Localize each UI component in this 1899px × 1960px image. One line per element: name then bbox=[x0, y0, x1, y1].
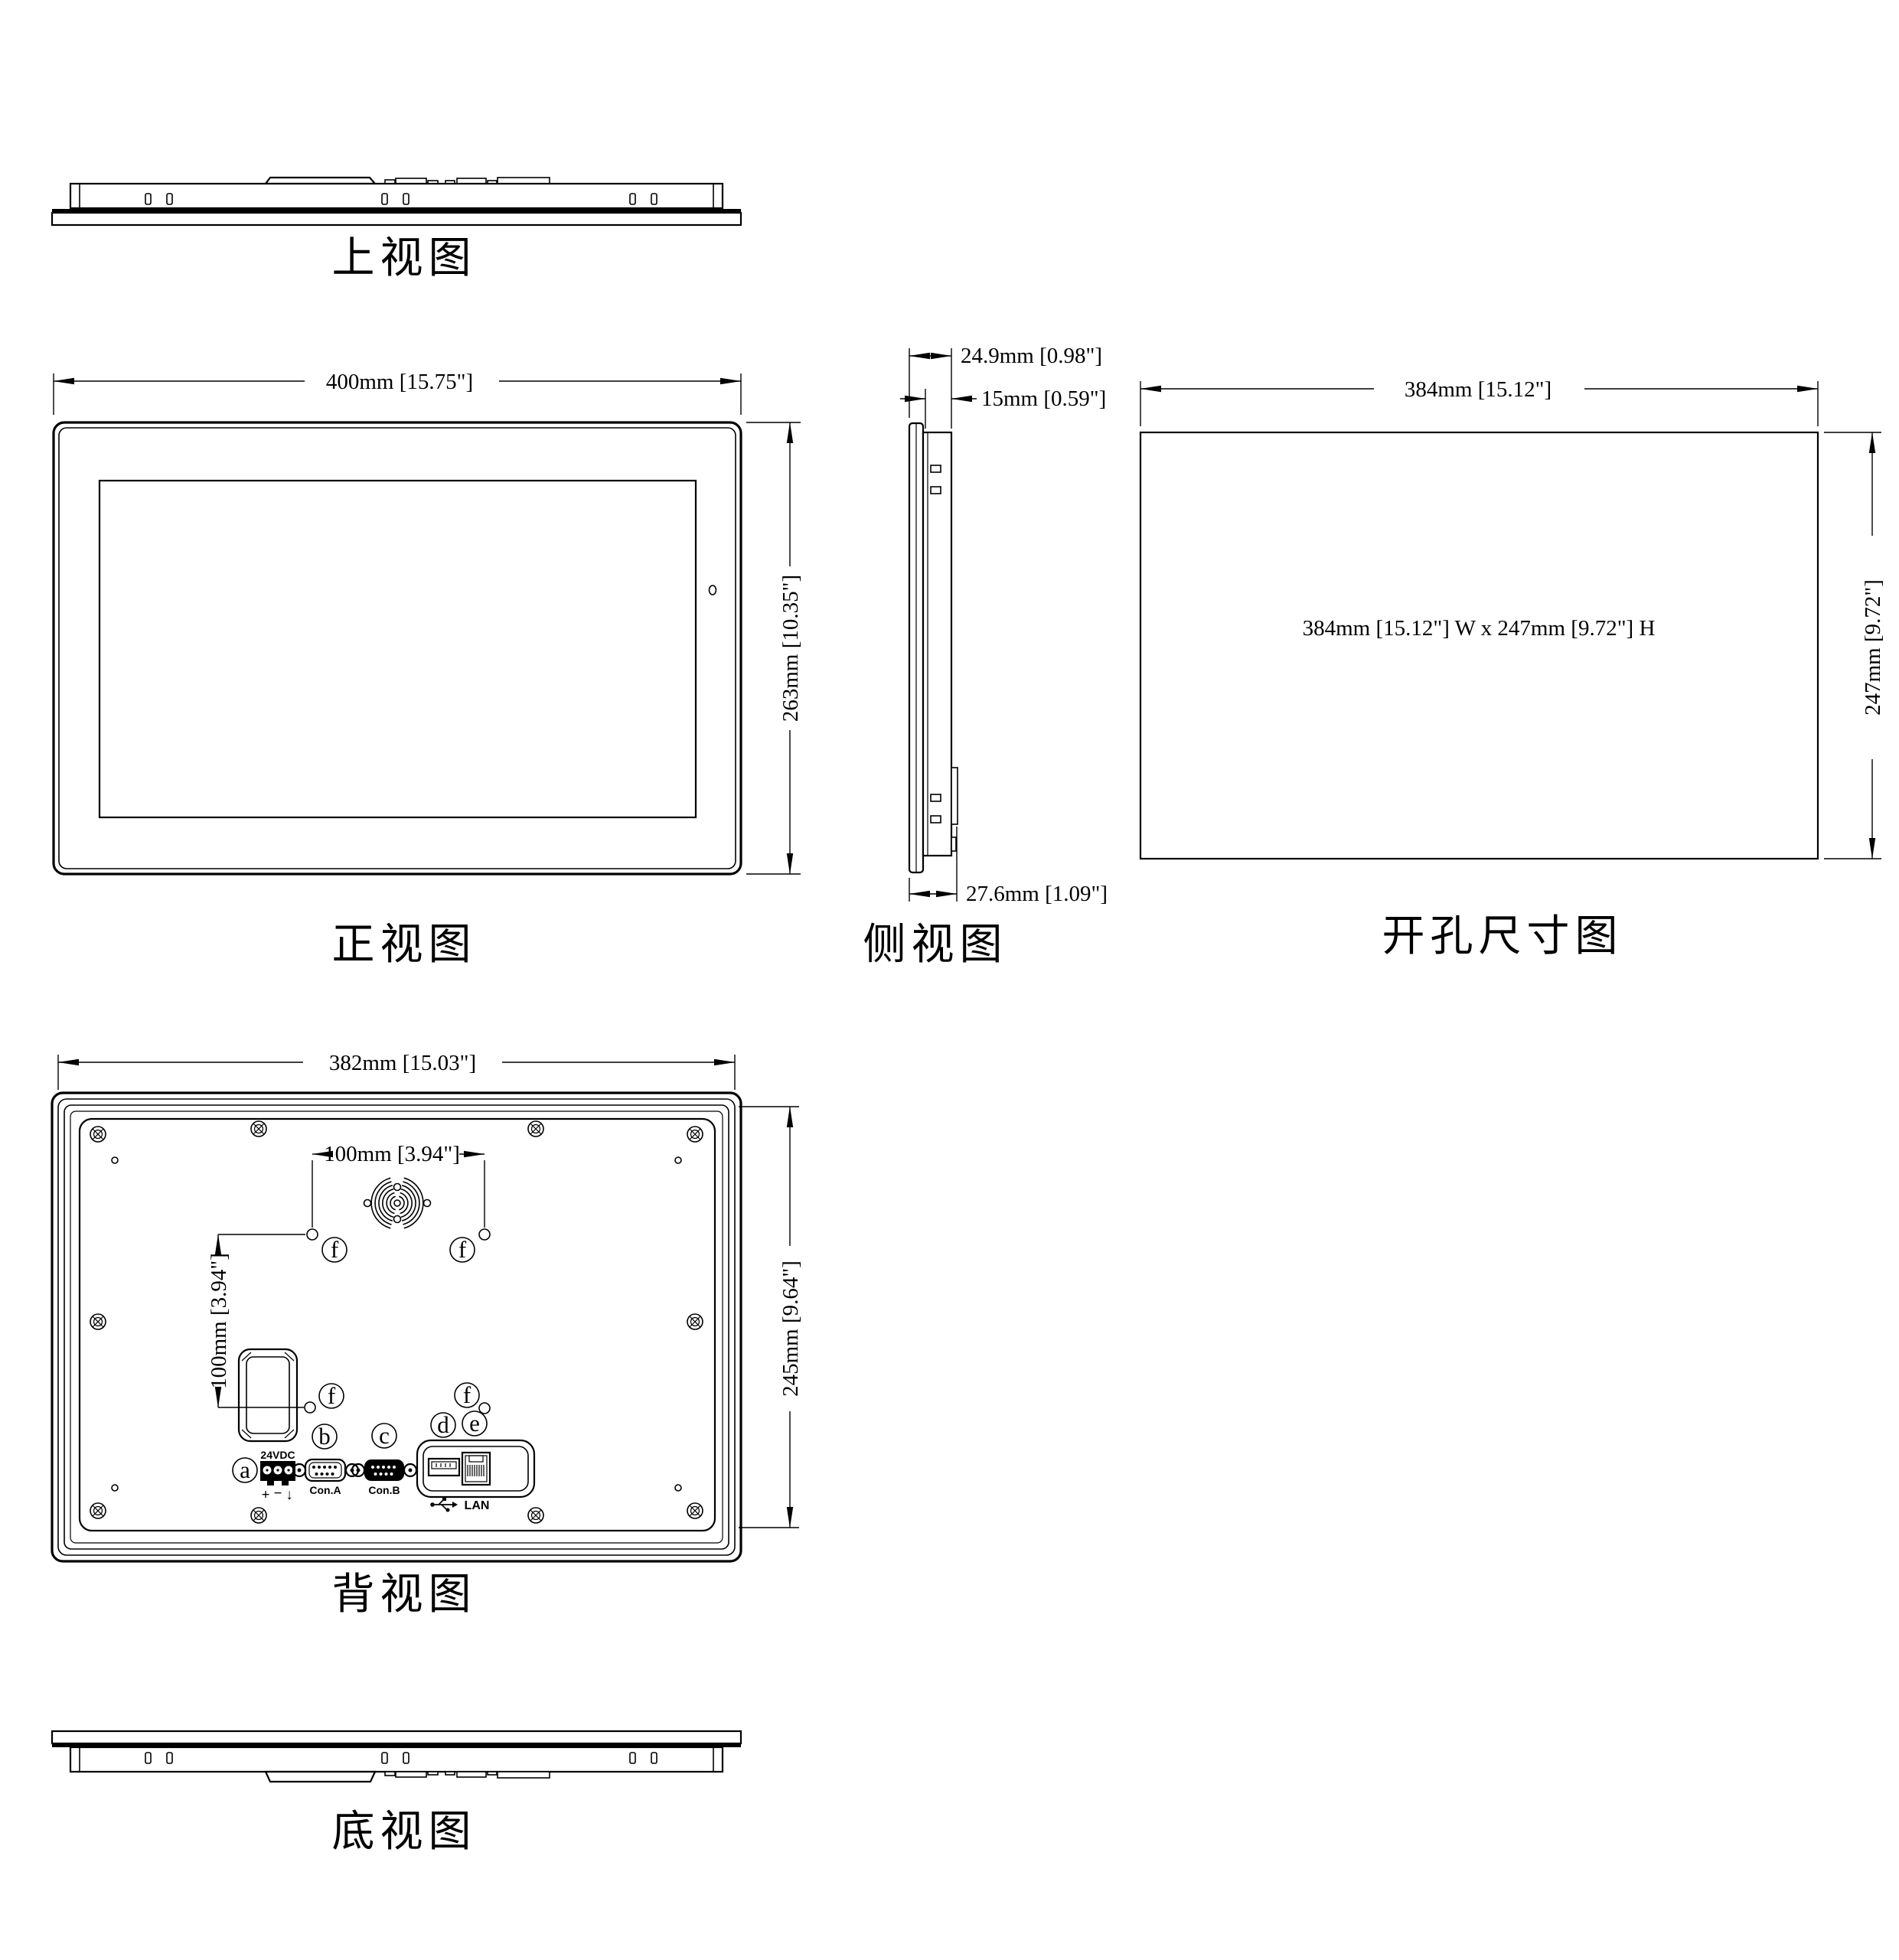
back-height-dim: 245mm [9.64"] bbox=[778, 1260, 803, 1397]
side-depth-rear-dim: 27.6mm [1.09"] bbox=[966, 882, 1108, 906]
callout-b: b bbox=[318, 1423, 331, 1450]
side-view: 24.9mm [0.98"] 15mm [0.59"] 27.6mm [1.09… bbox=[863, 344, 1108, 969]
top-bezel bbox=[52, 213, 741, 225]
back-width-dim: 382mm [15.03"] bbox=[329, 1051, 476, 1075]
con-a-label: Con.A bbox=[309, 1484, 341, 1496]
bottom-connector-bump bbox=[266, 1772, 375, 1782]
callout-c: c bbox=[379, 1422, 390, 1449]
power-plus-symbol: + bbox=[262, 1487, 270, 1503]
svg-text:f: f bbox=[328, 1382, 336, 1409]
side-view-label: 侧视图 bbox=[863, 921, 1008, 969]
drawing-svg: 上视图 400mm [15.75"] 263mm [10.35"] 正视图 bbox=[0, 0, 1899, 1960]
side-depth-total-dim: 24.9mm [0.98"] bbox=[961, 344, 1102, 368]
cutout-view-label: 开孔尺寸图 bbox=[1382, 913, 1623, 960]
front-width-dim: 400mm [15.75"] bbox=[326, 370, 473, 394]
back-view-label: 背视图 bbox=[332, 1571, 477, 1619]
svg-text:f: f bbox=[463, 1381, 471, 1408]
callout-f: f bbox=[331, 1236, 339, 1263]
front-view: 400mm [15.75"] 263mm [10.35"] 正视图 bbox=[54, 370, 803, 969]
side-connector-bump bbox=[951, 768, 958, 824]
vesa-height-dim: 100mm [3.94"] bbox=[207, 1253, 231, 1389]
bottom-body bbox=[70, 1747, 723, 1772]
top-view-label: 上视图 bbox=[332, 235, 477, 282]
bottom-view-label: 底视图 bbox=[332, 1808, 477, 1856]
front-height-dim: 263mm [10.35"] bbox=[778, 575, 803, 722]
callout-a: a bbox=[240, 1456, 250, 1483]
power-ground-symbol: ↓ bbox=[286, 1487, 293, 1503]
technical-drawing-page: 上视图 400mm [15.75"] 263mm [10.35"] 正视图 bbox=[0, 0, 1899, 1960]
cutout-width-dim: 384mm [15.12"] bbox=[1405, 377, 1552, 402]
power-label: 24VDC bbox=[260, 1449, 295, 1461]
con-b-label: Con.B bbox=[368, 1484, 400, 1496]
top-connector-bump bbox=[266, 178, 375, 184]
cutout-view: 384mm [15.12"] 384mm [15.12"] W x 247mm … bbox=[1140, 377, 1885, 960]
callout-e: e bbox=[469, 1410, 480, 1437]
cutout-height-dim: 247mm [9.72"] bbox=[1861, 579, 1885, 716]
front-outline bbox=[54, 422, 741, 874]
side-depth-front-dim: 15mm [0.59"] bbox=[981, 386, 1106, 411]
cutout-rect bbox=[1140, 432, 1818, 859]
bottom-view: 底视图 bbox=[52, 1731, 741, 1856]
bottom-bezel bbox=[52, 1731, 741, 1743]
power-minus-symbol: − bbox=[274, 1485, 282, 1502]
bottom-connector-bumps bbox=[385, 1772, 550, 1778]
lan-label: LAN bbox=[465, 1499, 490, 1512]
svg-text:f: f bbox=[458, 1236, 467, 1263]
power-terminal: 24VDC + − ↓ bbox=[260, 1449, 295, 1503]
vesa-width-dim: 100mm [3.94"] bbox=[324, 1142, 460, 1166]
top-connector-bumps bbox=[385, 178, 550, 184]
cutout-note: 384mm [15.12"] W x 247mm [9.72"] H bbox=[1303, 616, 1656, 641]
front-view-label: 正视图 bbox=[332, 921, 477, 969]
back-view: 382mm [15.03"] bbox=[52, 1051, 803, 1619]
top-view: 上视图 bbox=[52, 178, 741, 282]
callout-d: d bbox=[437, 1411, 449, 1438]
